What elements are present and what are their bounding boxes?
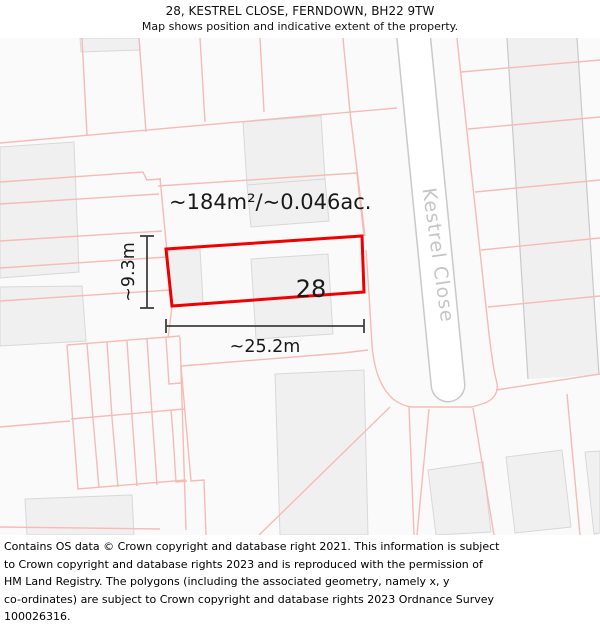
height-dimension-label: ~9.3m [119,242,139,302]
building-footprint [428,462,491,535]
width-dimension-label: ~25.2m [230,337,301,357]
page-subtitle: Map shows position and indicative extent… [0,19,600,34]
area-label: ~184m²/~0.046ac. [169,190,371,214]
property-number-label: 28 [296,275,327,303]
map-container: Kestrel Close ~184m²/~0.046ac. 28 ~25.2m… [0,38,600,535]
building-footprint [0,286,86,346]
map-header: 28, KESTREL CLOSE, FERNDOWN, BH22 9TW Ma… [0,0,600,38]
copyright-line: HM Land Registry. The polygons (includin… [4,573,600,591]
building-footprint [275,370,368,535]
building-footprint [506,450,571,533]
building-footprint [0,142,79,278]
building-footprint [80,38,140,52]
building-footprint [243,116,325,185]
copyright-line: Contains OS data © Crown copyright and d… [4,538,600,556]
building-footprint [168,249,203,305]
map-canvas: Kestrel Close ~184m²/~0.046ac. 28 ~25.2m… [0,38,600,535]
page-title: 28, KESTREL CLOSE, FERNDOWN, BH22 9TW [0,3,600,19]
copyright-notice: Contains OS data © Crown copyright and d… [0,535,600,626]
copyright-line: to Crown copyright and database rights 2… [4,556,600,574]
copyright-line: 100026316. [4,608,600,626]
copyright-line: co-ordinates) are subject to Crown copyr… [4,591,600,609]
